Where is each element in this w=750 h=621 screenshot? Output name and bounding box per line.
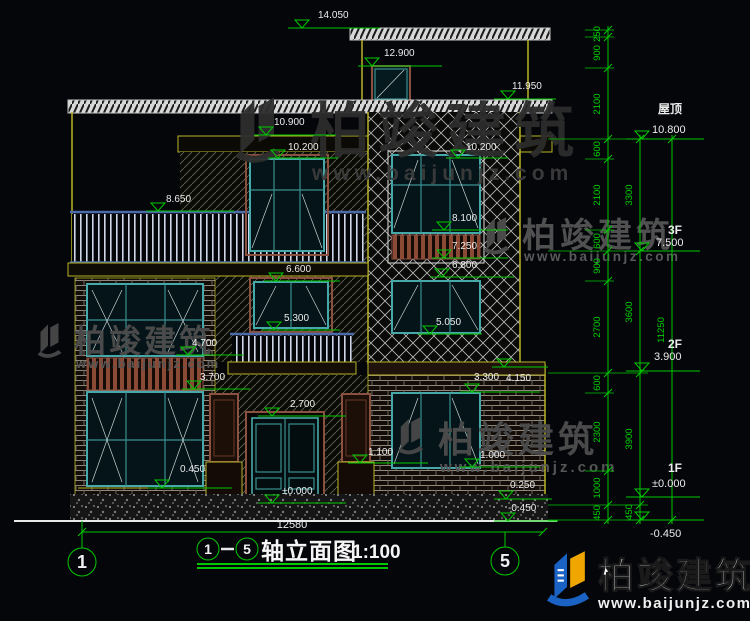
marker-value: 1.100 bbox=[368, 447, 393, 458]
watermark-url: www.baijunjz.com bbox=[75, 356, 220, 371]
marker-value: 6.600 bbox=[286, 264, 311, 275]
floor-value: ±0.000 bbox=[652, 478, 686, 490]
dim-value: 11250 bbox=[656, 317, 667, 343]
marker-value: 10.200 bbox=[288, 142, 319, 153]
marker-value: 10.200 bbox=[466, 142, 497, 153]
axis-number: 5 bbox=[500, 551, 510, 571]
elevation-drawing: 柏竣建筑 www.baijunjz.com 柏竣建筑 www.baijunjz.… bbox=[0, 0, 750, 621]
axis-number: 1 bbox=[77, 552, 87, 572]
dim-value: 450 bbox=[592, 505, 603, 521]
dim-value: 450 bbox=[624, 504, 635, 520]
marker-value: 1.000 bbox=[480, 450, 505, 461]
brand-logo: 柏竣建筑 www.baijunjz.com bbox=[547, 551, 750, 612]
balcony-slab bbox=[228, 362, 356, 374]
brand-logo-icon bbox=[547, 551, 589, 606]
marker-value: 7.250 bbox=[452, 241, 477, 252]
dim-value: 3600 bbox=[624, 301, 635, 322]
balcony-2f bbox=[228, 334, 356, 374]
title-axis-end: 5 bbox=[243, 541, 251, 557]
floor-value: 3.900 bbox=[654, 351, 682, 363]
axis-bubble-1: 1 bbox=[68, 548, 96, 576]
watermark-logo-icon bbox=[38, 323, 62, 358]
dim-value: 250 bbox=[592, 26, 603, 42]
marker-value: 3.300 bbox=[474, 372, 499, 383]
dim-value: 2100 bbox=[592, 93, 603, 114]
axis-bubble-5: 5 bbox=[491, 547, 519, 575]
level-marker: 12.900 bbox=[358, 48, 442, 66]
watermark-brand: 柏竣建筑 bbox=[438, 419, 598, 460]
marker-value: 10.900 bbox=[274, 117, 305, 128]
floor-name: 1F bbox=[668, 461, 682, 475]
level-marker: 11.950 bbox=[494, 81, 556, 99]
dim-value: 600 bbox=[592, 375, 603, 391]
penthouse-roof-slab bbox=[350, 28, 550, 40]
floor-name: 屋顶 bbox=[658, 102, 682, 116]
floor-value: 7.500 bbox=[656, 237, 684, 249]
marker-value: 5.300 bbox=[284, 313, 309, 324]
marker-value: 0.450 bbox=[180, 464, 205, 475]
floor-name: 3F bbox=[668, 223, 682, 237]
cad-drawing-viewport: 柏竣建筑 www.baijunjz.com 柏竣建筑 www.baijunjz.… bbox=[0, 0, 750, 621]
floor-level-roof: 屋顶 10.800 bbox=[626, 102, 704, 139]
dim-value: 900 bbox=[592, 258, 603, 274]
dim-value: 2700 bbox=[592, 316, 603, 337]
marker-value: 0.250 bbox=[510, 480, 535, 491]
level-marker: 14.050 bbox=[288, 10, 380, 28]
dim-value: 2100 bbox=[592, 184, 603, 205]
marker-value: 2.700 bbox=[290, 399, 315, 410]
floor-level-ground: -0.450 bbox=[626, 512, 704, 540]
floor-name: 2F bbox=[668, 337, 682, 351]
dim-value: 3900 bbox=[624, 428, 635, 449]
marker-value: 12.900 bbox=[384, 48, 415, 59]
dim-value: 600 bbox=[592, 233, 603, 249]
floor-value: -0.450 bbox=[650, 528, 681, 540]
watermark-brand: 柏竣建筑 bbox=[310, 98, 582, 165]
marker-value: 8.100 bbox=[452, 213, 477, 224]
title-scale: 1:100 bbox=[352, 542, 401, 563]
marker-value: ±0.000 bbox=[282, 486, 313, 497]
marker-value: 14.050 bbox=[318, 10, 349, 21]
brand-logo-text: 柏竣建筑 bbox=[598, 555, 750, 596]
dim-value: 1000 bbox=[592, 477, 603, 498]
plinth-band bbox=[70, 494, 548, 521]
watermark-url: www.baijunjz.com bbox=[311, 162, 573, 185]
balcony-slab bbox=[68, 263, 368, 276]
dim-value: 900 bbox=[592, 45, 603, 61]
dim-value: 3300 bbox=[624, 184, 635, 205]
marker-value: 6.800 bbox=[452, 260, 477, 271]
dim-value: 2300 bbox=[592, 421, 603, 442]
balcony-railing bbox=[232, 336, 352, 362]
marker-value: 11.950 bbox=[512, 81, 542, 92]
marker-value: 5.050 bbox=[436, 317, 461, 328]
penthouse-window bbox=[372, 66, 410, 102]
marker-value: 3.700 bbox=[200, 372, 225, 383]
overall-width-dim: 12580 bbox=[277, 519, 308, 531]
drawing-title: 1 5 轴立面图 1:100 bbox=[197, 538, 401, 569]
brand-logo-url: www.baijunjz.com bbox=[597, 595, 750, 612]
marker-value: 4.150 bbox=[506, 373, 531, 384]
marker-value: -0.450 bbox=[508, 503, 537, 514]
marker-value: 8.650 bbox=[166, 194, 191, 205]
title-axis-start: 1 bbox=[204, 541, 212, 557]
marker-value: 4.700 bbox=[192, 338, 217, 349]
title-text: 轴立面图 bbox=[261, 538, 357, 564]
dim-value: 600 bbox=[592, 141, 603, 157]
floor-level-1f: 1F ±0.000 bbox=[626, 461, 700, 497]
floor-value: 10.800 bbox=[652, 124, 686, 136]
